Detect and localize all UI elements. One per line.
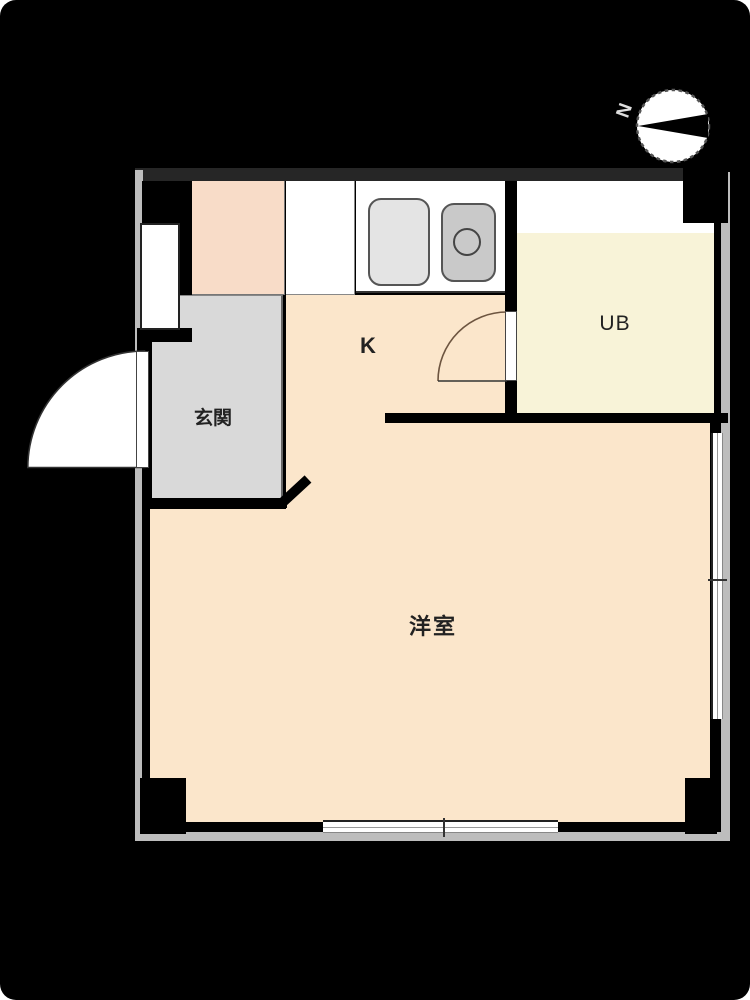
building-outline-bottom: [135, 832, 728, 841]
label-entrance: 玄関: [173, 403, 253, 430]
label-kitchen: K: [338, 333, 398, 359]
compass: N: [600, 85, 740, 175]
wall-corner-bottom-right: [685, 778, 717, 834]
closet-area: [192, 181, 285, 295]
window-left: [140, 223, 180, 330]
wall-corner-top-right: [683, 168, 728, 223]
sink-drain: [453, 228, 481, 256]
top-wall-cap-left: [135, 170, 143, 181]
kitchen-appliance-space: [286, 181, 355, 295]
room-western-bottom: [186, 780, 685, 822]
wall-diagonal-stub: [275, 470, 320, 515]
label-unit-bath: UB: [580, 312, 650, 336]
floor-plan: N K UB 玄関 洋室: [0, 0, 750, 1000]
counter-basin: [368, 198, 430, 286]
bath-door-leaf: [505, 311, 517, 381]
label-western-room: 洋室: [388, 609, 478, 641]
window-track-line: [717, 433, 718, 719]
window-track-line: [323, 827, 558, 828]
window-center-tick: [708, 579, 727, 581]
wall-kitchen-bottom: [385, 413, 728, 423]
wall-entrance-bottom: [148, 498, 287, 508]
wall-corner-bottom-left: [140, 778, 186, 834]
room-western-left: [150, 509, 710, 780]
entrance-door-swing: [27, 350, 146, 469]
bath-door-swing: [437, 311, 508, 382]
sliding-window-right: [711, 433, 723, 719]
window-center-tick: [443, 818, 445, 837]
compass-north-label: N: [613, 101, 637, 121]
wall-bath-left-upper: [505, 181, 517, 312]
entrance-door-leaf: [136, 351, 149, 468]
sliding-window-bottom: [323, 820, 558, 833]
